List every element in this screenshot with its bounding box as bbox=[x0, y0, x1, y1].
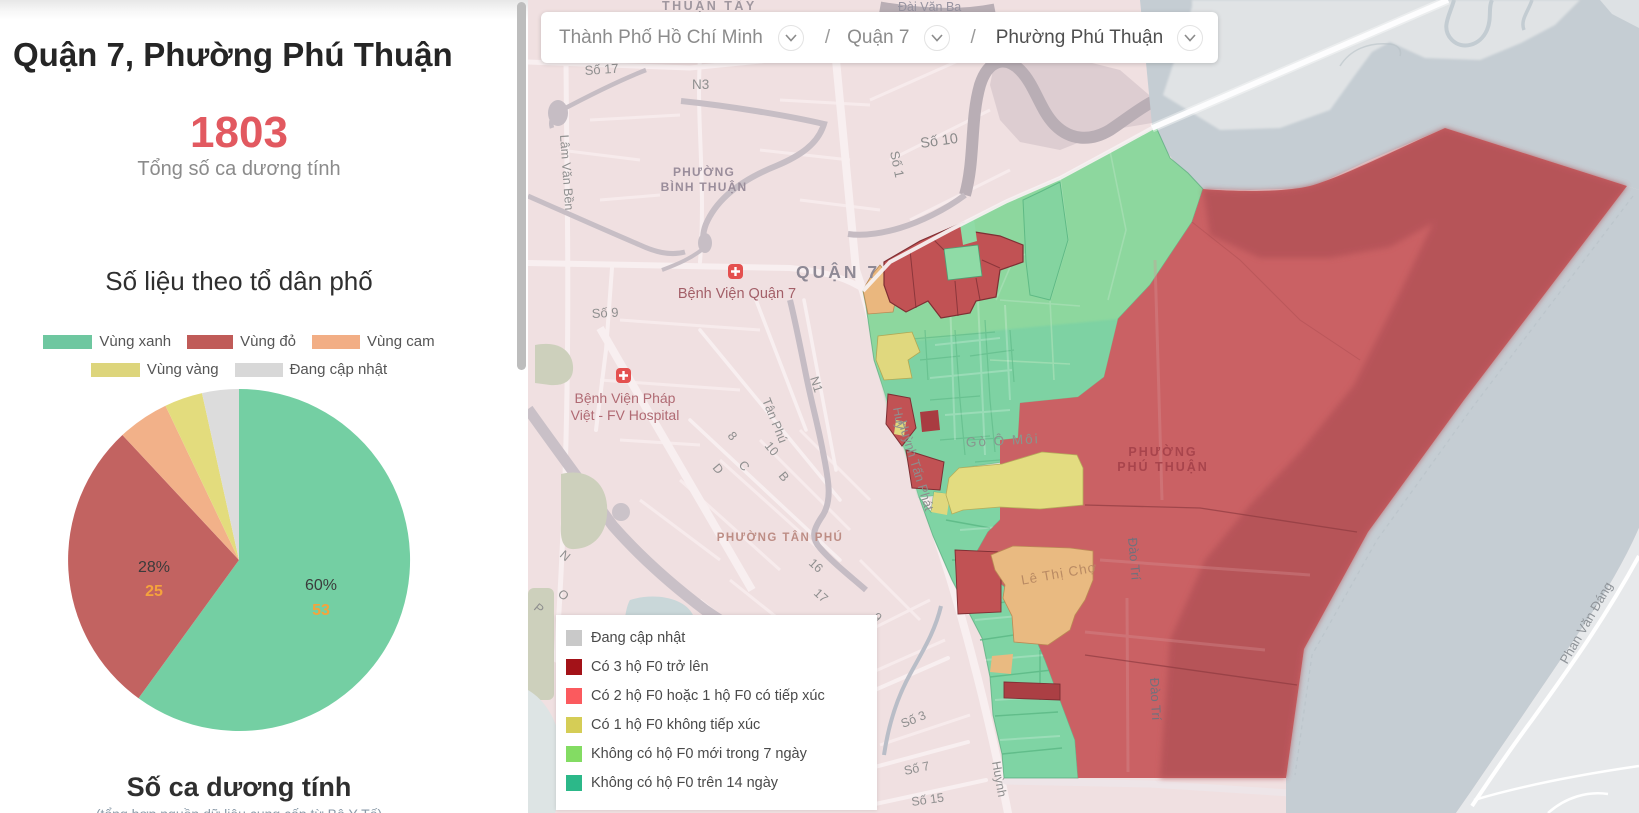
svg-text:25: 25 bbox=[145, 583, 163, 600]
svg-text:BÌNH THUẬN: BÌNH THUẬN bbox=[661, 179, 748, 194]
svg-text:N3: N3 bbox=[692, 77, 709, 92]
svg-text:28%: 28% bbox=[138, 559, 170, 576]
svg-text:Số 9: Số 9 bbox=[591, 305, 618, 321]
svg-text:Bệnh Viện Pháp: Bệnh Viện Pháp bbox=[575, 390, 676, 406]
svg-text:Số 17: Số 17 bbox=[584, 61, 619, 78]
svg-text:53: 53 bbox=[312, 602, 330, 619]
svg-text:QUẬN 7: QUẬN 7 bbox=[796, 261, 880, 282]
svg-text:60%: 60% bbox=[305, 577, 337, 594]
svg-text:Đào Trí: Đào Trí bbox=[1147, 677, 1164, 721]
svg-text:Bệnh Viện Quận 7: Bệnh Viện Quận 7 bbox=[678, 286, 796, 302]
svg-text:PHÚ THUẬN: PHÚ THUẬN bbox=[1117, 459, 1209, 474]
svg-text:PHƯỜNG: PHƯỜNG bbox=[673, 164, 735, 179]
svg-text:Việt - FV Hospital: Việt - FV Hospital bbox=[571, 407, 680, 423]
svg-text:PHƯỜNG TÂN PHÚ: PHƯỜNG TÂN PHÚ bbox=[717, 531, 843, 544]
svg-text:PHƯỜNG: PHƯỜNG bbox=[1128, 444, 1197, 459]
